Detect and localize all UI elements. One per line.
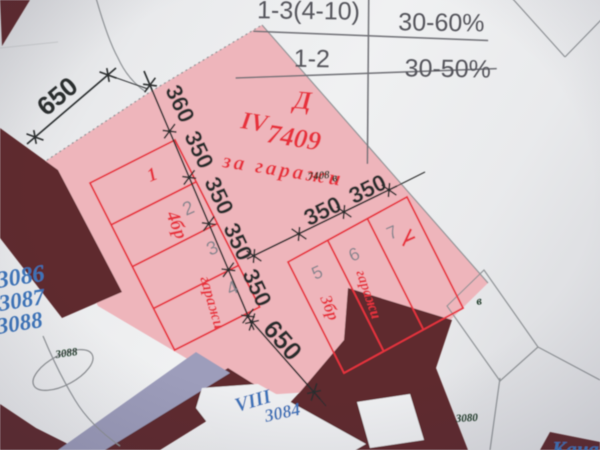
cadastral-map-photo: 650 360 350 350 350 350 350 350 650 Д IV… — [0, 0, 600, 450]
map-canvas: 650 360 350 350 350 350 350 350 650 Д IV… — [0, 0, 600, 450]
photo-vignette — [0, 0, 600, 450]
